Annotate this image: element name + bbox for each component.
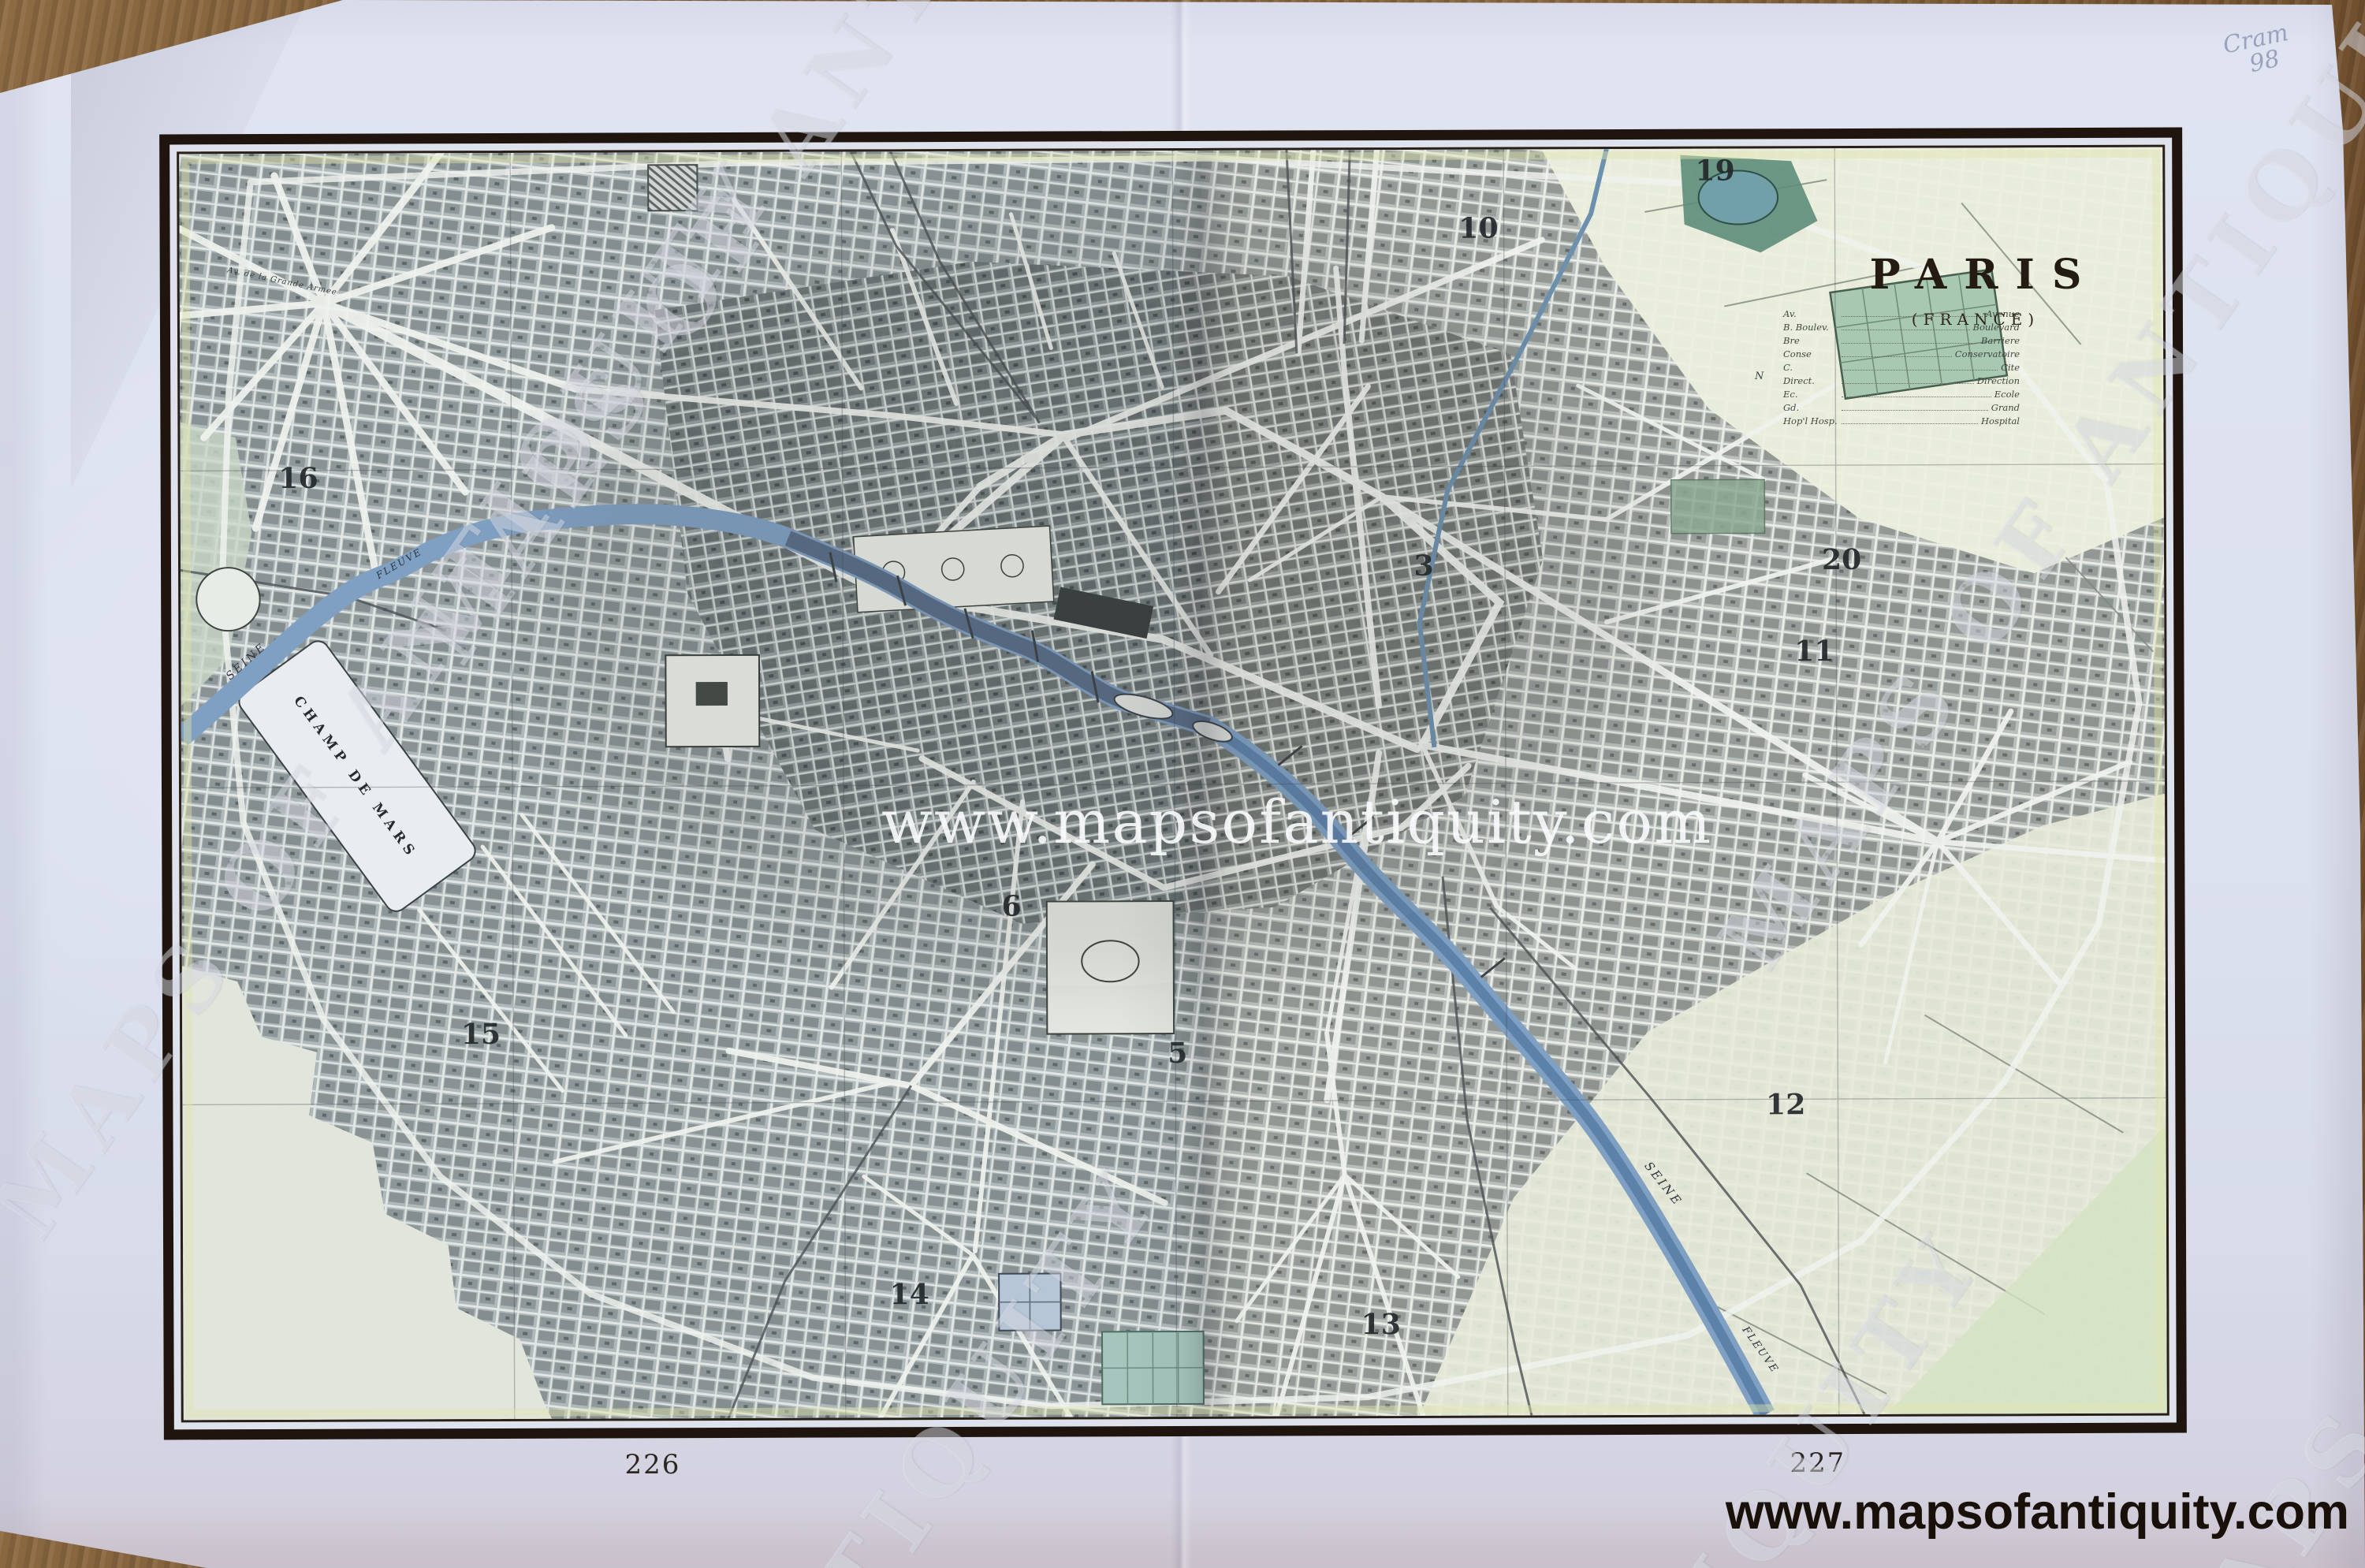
legend-leader xyxy=(1842,315,1983,317)
legend-term: Direction xyxy=(1977,375,2020,386)
legend-abbr: Ec. xyxy=(1783,389,1838,400)
legend-row: B. Boulev.Boulevard xyxy=(1783,319,2020,333)
montmartre-cemetery xyxy=(648,165,697,210)
legend-abbr: Bre xyxy=(1783,335,1838,346)
map-legend: Av.Avenue B. Boulev.Boulevard BreBarrier… xyxy=(1783,306,2020,426)
district-number: 14 xyxy=(889,1277,929,1311)
legend-abbr: C. xyxy=(1783,362,1838,373)
legend-leader xyxy=(1842,409,1988,411)
page-number-left: 226 xyxy=(605,1449,700,1480)
legend-row: ConseConservatoire xyxy=(1783,346,2020,359)
legend-term: Conservatoire xyxy=(1955,348,2020,359)
legend-leader xyxy=(1842,329,1970,330)
map-title: PARIS xyxy=(1849,251,2102,299)
district-number: 15 xyxy=(461,1017,501,1051)
compass-north-mark: N xyxy=(1755,371,1764,382)
legend-term: Hospital xyxy=(1981,415,2020,426)
district-number: 20 xyxy=(1822,542,1861,576)
district-number: 11 xyxy=(1794,634,1834,668)
district-number: 12 xyxy=(1766,1087,1805,1121)
legend-row: Ec.Ecole xyxy=(1783,386,2020,400)
legend-term: Grand xyxy=(1991,402,2020,413)
legend-leader xyxy=(1842,342,1978,344)
legend-row: Gd.Grand xyxy=(1783,400,2020,413)
website-url: www.mapsofantiquity.com xyxy=(1592,1484,2349,1540)
legend-row: BreBarriere xyxy=(1783,333,2020,346)
district-number: 13 xyxy=(1361,1307,1400,1341)
trocadero xyxy=(196,568,260,631)
legend-leader xyxy=(1842,382,1974,384)
legend-row: Av.Avenue xyxy=(1783,306,2020,319)
legend-row: Hop'l Hosp.Hospital xyxy=(1783,413,2020,426)
district-number: 10 xyxy=(1458,211,1498,245)
legend-term: Ecole xyxy=(1994,389,2020,400)
page-number-right: 227 xyxy=(1771,1447,1865,1479)
legend-row: C.Cite xyxy=(1783,359,2020,373)
legend-abbr: Conse xyxy=(1783,348,1838,359)
legend-leader xyxy=(1842,423,1978,424)
legend-term: Barriere xyxy=(1981,335,2020,346)
legend-abbr: Direct. xyxy=(1783,375,1838,386)
east-park xyxy=(1671,479,1765,533)
legend-leader xyxy=(1842,356,1952,357)
legend-leader xyxy=(1842,369,1998,371)
legend-abbr: Av. xyxy=(1783,308,1838,319)
district-number: 16 xyxy=(278,461,318,495)
legend-term: Avenue xyxy=(1986,308,2020,319)
photo-of-antique-map: CHAMP DE MARS xyxy=(0,0,2365,1568)
legend-abbr: B. Boulev. xyxy=(1783,322,1838,333)
legend-row: Direct.Direction xyxy=(1783,373,2020,386)
legend-term: Boulevard xyxy=(1973,322,2020,333)
legend-abbr: Hop'l Hosp. xyxy=(1783,415,1838,426)
montparnasse-cemetery xyxy=(999,1274,1061,1331)
legend-term: Cite xyxy=(2001,362,2020,373)
legend-abbr: Gd. xyxy=(1783,402,1838,413)
legend-leader xyxy=(1842,396,1991,397)
